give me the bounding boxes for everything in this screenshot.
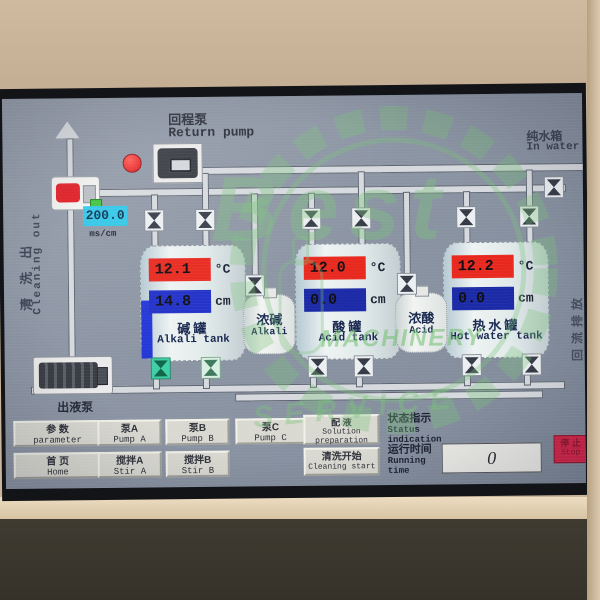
running-time-label: 运行时间 Running time	[388, 444, 432, 476]
outlet-pump-icon[interactable]	[33, 356, 113, 395]
conc-alkali-tank: 浓碱 Alkali	[243, 294, 296, 355]
return-pump-icon[interactable]	[152, 143, 202, 184]
hot-water-tank-name-en: Hot water tank	[444, 330, 548, 343]
valve-icon[interactable]	[245, 274, 265, 296]
running-time-value: 0	[442, 442, 542, 473]
valve-icon[interactable]	[201, 357, 221, 379]
valve-state-red	[56, 183, 80, 202]
hot-water-temp-unit: °C	[518, 258, 546, 273]
pump-c-button[interactable]: 泵CPump C	[235, 418, 305, 445]
flow-arrow-up-icon	[55, 121, 79, 138]
hot-water-tank: 12.2 °C 0.0 cm 热水罐 Hot water tank	[442, 241, 549, 358]
valve-icon[interactable]	[544, 176, 564, 198]
wall-background	[0, 0, 600, 92]
valve-icon[interactable]	[308, 356, 328, 378]
conductivity-unit: ms/cm	[89, 229, 116, 239]
acid-temp-readout: 12.0	[304, 256, 366, 280]
hot-water-level-unit: cm	[518, 290, 546, 305]
alkali-level-unit: cm	[215, 294, 243, 309]
stir-b-button[interactable]: 搅拌BStir B	[166, 451, 230, 478]
pipe	[310, 377, 317, 388]
solution-preparation-button[interactable]: 配 液 Solution preparation	[303, 414, 379, 445]
acid-tank: 12.0 °C 0.0 cm 酸罐 Acid tank	[294, 243, 401, 360]
pipe	[358, 171, 365, 211]
pipe	[403, 192, 411, 276]
outlet-pump-label: 出液泵	[57, 398, 93, 415]
pipe	[356, 376, 363, 387]
alkali-tank: 12.1 °C 14.8 cm 碱罐 Alkali tank	[140, 245, 247, 362]
hot-water-temp-readout: 12.2	[452, 255, 514, 279]
valve-icon[interactable]	[144, 209, 164, 231]
cleaning-out-label-en: Cleaning out	[31, 211, 44, 314]
valve-icon[interactable]	[301, 208, 321, 230]
alkali-level-readout: 14.8	[149, 290, 211, 314]
wall-right-edge	[587, 0, 600, 600]
acid-temp-unit: °C	[370, 260, 398, 275]
status-indication-label: 状态指示 Status indication	[387, 412, 441, 445]
lower-panel-shadow	[0, 519, 600, 600]
reflux-drain-label: 回流排放	[568, 293, 586, 361]
pipe	[202, 173, 209, 213]
home-button[interactable]: 首 页Home	[14, 452, 102, 479]
conc-alkali-name-cn: 浓碱	[244, 309, 294, 329]
conc-acid-name-cn: 浓酸	[396, 307, 446, 327]
alkali-temp-unit: °C	[215, 262, 243, 277]
pump-b-button[interactable]: 泵BPump B	[165, 419, 229, 446]
pump-a-button[interactable]: 泵APump A	[97, 419, 161, 446]
valve-icon[interactable]	[351, 207, 371, 229]
return-pump-label-en: Return pump	[168, 124, 254, 140]
hmi-screen: 回程泵 Return pump 清洗出 Cleaning out 200.0 m…	[2, 93, 586, 489]
valve-icon[interactable]	[519, 205, 539, 227]
valve-icon[interactable]	[354, 355, 374, 377]
valve-icon[interactable]	[151, 357, 171, 379]
conc-acid-tank: 浓酸 Acid	[395, 292, 448, 353]
conductivity-readout: 200.0	[83, 206, 127, 226]
valve-icon[interactable]	[462, 354, 482, 376]
acid-level-readout: 0.0	[304, 288, 366, 312]
in-water-label-en: In water	[526, 141, 579, 154]
alkali-temp-readout: 12.1	[149, 258, 211, 282]
pipe	[203, 378, 210, 389]
valve-icon[interactable]	[397, 273, 417, 295]
conc-alkali-name-en: Alkali	[244, 327, 294, 339]
parameter-button[interactable]: 参 数parameter	[13, 420, 101, 447]
alkali-tank-name-en: Alkali tank	[141, 334, 245, 347]
cleaning-start-button[interactable]: 清洗开始 Cleaning start	[304, 447, 380, 476]
panel-ledge	[0, 497, 600, 519]
conc-acid-name-en: Acid	[396, 325, 446, 337]
alarm-lamp-icon	[123, 154, 142, 173]
valve-icon[interactable]	[522, 353, 542, 375]
pipe	[524, 375, 531, 386]
acid-level-unit: cm	[370, 292, 398, 307]
stop-button[interactable]: 停 止 Stop	[554, 435, 587, 463]
pipe	[526, 169, 533, 209]
acid-tank-name-en: Acid tank	[296, 332, 400, 345]
hmi-monitor-bezel: 回程泵 Return pump 清洗出 Cleaning out 200.0 m…	[0, 83, 590, 501]
stir-a-button[interactable]: 搅拌AStir A	[98, 451, 162, 478]
valve-icon[interactable]	[456, 206, 476, 228]
valve-icon[interactable]	[195, 209, 215, 231]
pipe	[251, 193, 259, 277]
hot-water-level-readout: 0.0	[452, 287, 514, 311]
pipe	[464, 375, 471, 386]
pipe	[153, 378, 160, 389]
